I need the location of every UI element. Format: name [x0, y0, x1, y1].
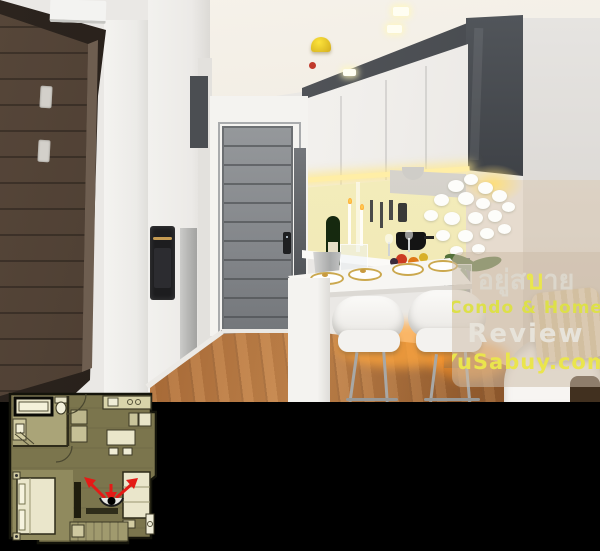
- wine-glass: [408, 238, 410, 252]
- left-wall: [104, 20, 150, 402]
- chair-base: [346, 398, 398, 401]
- dining-chair-seat: [338, 330, 400, 352]
- stool: [109, 448, 118, 455]
- candle: [348, 204, 351, 244]
- dining-table-plan: [107, 430, 135, 445]
- counter: [129, 413, 138, 426]
- watermark-brand-thai: อยู่สบาย: [478, 266, 575, 296]
- table-end-panel: [288, 278, 330, 402]
- hanging-utensil: [389, 200, 393, 220]
- pillow-plan: [19, 510, 25, 530]
- door-hinge: [39, 86, 52, 109]
- recessed-light: [343, 69, 356, 76]
- candle-flame: [360, 204, 364, 210]
- emergency-light: [50, 0, 107, 24]
- watermark-website: YuSabuy.com: [452, 350, 600, 374]
- door-hinge: [37, 140, 50, 163]
- stool: [123, 448, 132, 455]
- fire-sprinkler: [309, 62, 316, 69]
- hanging-utensil: [380, 202, 383, 228]
- pillow-plan: [19, 484, 25, 504]
- oven-handle: [153, 237, 172, 240]
- dinner-plate: [392, 263, 424, 276]
- glass-candle-stand: [356, 182, 360, 252]
- smoke-detector-dome: [311, 37, 331, 52]
- sink: [16, 424, 24, 433]
- ac-unit: [72, 525, 84, 537]
- closet: [71, 426, 87, 442]
- watermark-tagline: Condo & Home: [452, 298, 600, 318]
- recessed-light: [393, 7, 409, 16]
- chair-base: [424, 398, 480, 401]
- camera-dot: [108, 497, 116, 505]
- food: [360, 269, 366, 273]
- skirting-board: [222, 329, 296, 333]
- wall-phone: [398, 203, 407, 222]
- screenshot-canvas: อยู่สบาย Condo & Home Review YuSabuy.com: [0, 0, 600, 551]
- condo-interior-photo: อยู่สบาย Condo & Home Review YuSabuy.com: [0, 0, 600, 402]
- counter-end-panel: [294, 148, 306, 294]
- cabinet-seam: [385, 80, 387, 180]
- recessed-light: [387, 25, 402, 33]
- wine-glass: [405, 230, 413, 240]
- fridge: [139, 413, 151, 426]
- food: [322, 273, 328, 277]
- wine-glass: [388, 242, 390, 256]
- oven-door-glass: [154, 248, 171, 288]
- hanging-utensil: [370, 200, 373, 222]
- wardrobe: [74, 482, 81, 518]
- entrance-door: [222, 126, 293, 332]
- kitchen-sink: [108, 398, 118, 406]
- cabinet-seam: [425, 66, 427, 174]
- dark-door-track: [190, 76, 208, 148]
- floor-plan-inset: [8, 388, 157, 545]
- tv-console: [86, 508, 118, 514]
- candle-flame: [348, 198, 352, 204]
- watermark-panel: อยู่สบาย Condo & Home Review YuSabuy.com: [452, 252, 600, 387]
- toilet: [56, 402, 66, 414]
- refrigerator: [180, 228, 197, 366]
- wine-glass: [385, 234, 393, 244]
- watermark-review: Review: [467, 320, 584, 348]
- lock-keypad-light: [286, 236, 288, 238]
- candle: [360, 210, 363, 246]
